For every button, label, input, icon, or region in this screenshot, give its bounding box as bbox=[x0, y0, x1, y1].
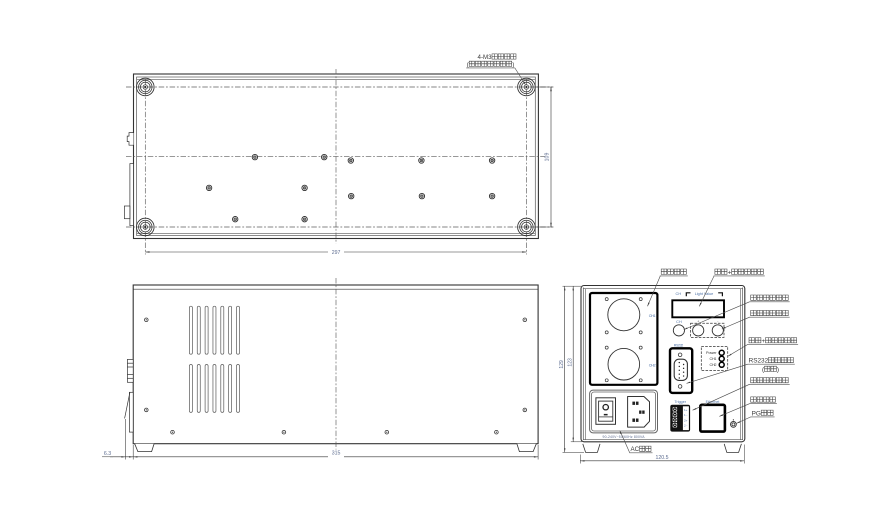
svg-text:CH2: CH2 bbox=[649, 363, 656, 367]
svg-text:109: 109 bbox=[545, 153, 551, 162]
svg-text:+: + bbox=[761, 338, 765, 345]
svg-text:Light Value: Light Value bbox=[695, 292, 714, 296]
svg-text:6.3: 6.3 bbox=[104, 451, 111, 457]
svg-text:1-: 1- bbox=[684, 413, 687, 417]
svg-text:PG: PG bbox=[752, 410, 761, 417]
svg-text:2+: 2+ bbox=[684, 418, 688, 422]
svg-text:4-M3: 4-M3 bbox=[478, 54, 493, 61]
svg-text:CH2: CH2 bbox=[710, 363, 717, 367]
svg-text:CH: CH bbox=[676, 292, 682, 296]
svg-text:Trigger: Trigger bbox=[674, 400, 686, 404]
svg-text:CH1: CH1 bbox=[710, 357, 717, 361]
svg-text:RS232: RS232 bbox=[749, 358, 769, 365]
svg-text:): ) bbox=[512, 61, 514, 68]
svg-text:+: + bbox=[728, 269, 732, 276]
svg-text:120.5: 120.5 bbox=[656, 455, 669, 461]
svg-text:315: 315 bbox=[332, 451, 341, 457]
svg-text:90-240V~50/60Hz 800VA: 90-240V~50/60Hz 800VA bbox=[603, 435, 646, 439]
svg-text:CH: CH bbox=[676, 320, 682, 324]
svg-text:AC: AC bbox=[631, 446, 640, 453]
svg-text:CH1: CH1 bbox=[649, 314, 656, 318]
svg-text:RS232: RS232 bbox=[674, 344, 684, 348]
svg-text:2-: 2- bbox=[684, 424, 687, 428]
svg-text:123: 123 bbox=[568, 358, 574, 367]
svg-text:1+: 1+ bbox=[684, 408, 688, 412]
svg-text:Power: Power bbox=[706, 351, 717, 355]
svg-text:): ) bbox=[777, 366, 779, 373]
svg-text:297: 297 bbox=[332, 250, 341, 256]
svg-text:129: 129 bbox=[559, 360, 565, 369]
